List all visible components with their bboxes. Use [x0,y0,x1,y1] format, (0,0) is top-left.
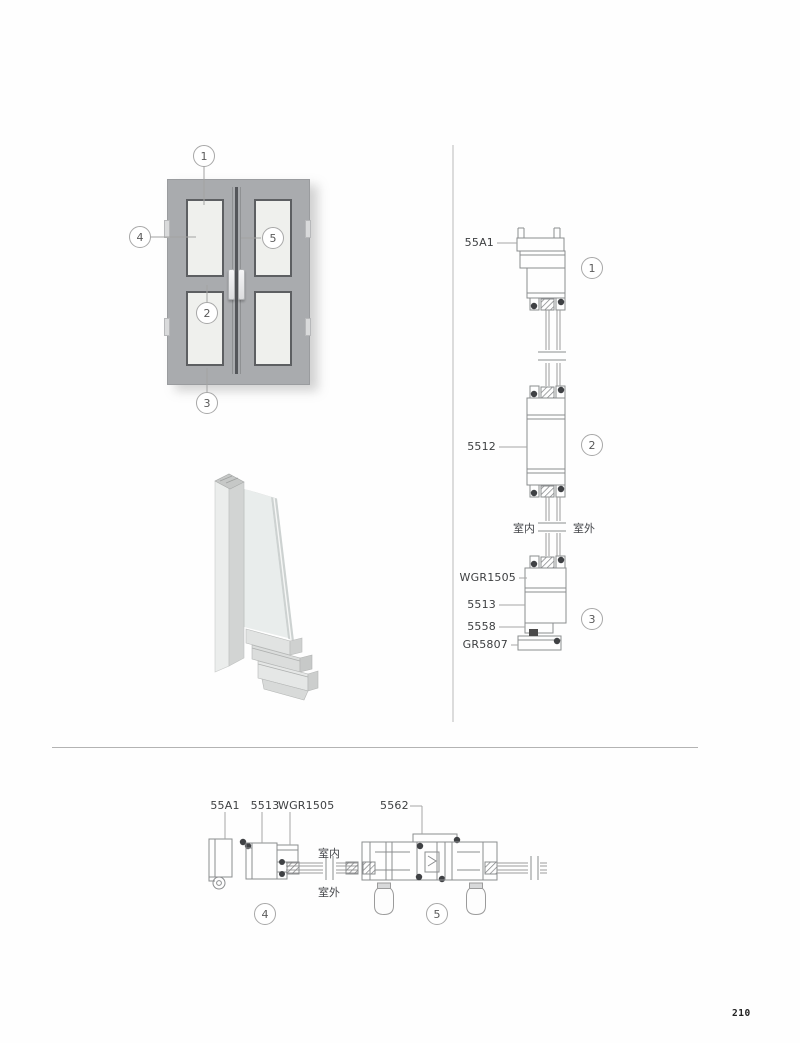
callout-section-5-label: 5 [434,908,441,921]
horizontal-divider [52,747,698,748]
page-number: 210 [732,1008,751,1019]
callout-4-label: 4 [137,231,144,244]
label-head-frame: 55A1 [414,236,494,250]
door-handle-section [375,883,394,915]
label-sill: GR5807 [428,638,508,652]
outdoor-label-horizontal: 室外 [318,884,340,900]
callout-3: 3 [196,392,218,414]
indoor-label-vertical: 室内 [513,520,535,536]
callout-section-2: 2 [581,434,603,456]
hinge [164,318,170,336]
profile-3d-view [215,474,318,700]
callout-section-3: 3 [581,608,603,630]
hinge [305,318,311,336]
label-bottom-frame: 5513 [416,598,496,612]
indoor-label-horizontal: 室内 [318,845,340,861]
window-handle-left [228,269,235,300]
label-transom: 5512 [416,440,496,454]
vertical-divider [452,145,454,722]
label-connector: 5558 [416,620,496,634]
line-art-overlay [0,0,800,1043]
hinge [164,220,170,238]
callout-2: 2 [196,302,218,324]
horizontal-section-drawing [209,806,547,915]
callout-section-3-label: 3 [589,613,596,626]
hinge [305,220,311,238]
callout-3-label: 3 [204,397,211,410]
glass-pane [186,199,224,277]
label-interlock: 5562 [380,799,409,813]
callout-5: 5 [262,227,284,249]
callout-section-4-label: 4 [262,908,269,921]
outdoor-label-vertical: 室外 [573,520,595,536]
callout-1-label: 1 [201,150,208,163]
callout-2-label: 2 [204,307,211,320]
callout-1: 1 [193,145,215,167]
callout-5-label: 5 [270,232,277,245]
callout-4: 4 [129,226,151,248]
window-handle-right [238,269,245,300]
label-glazing-bead-h: WGR1505 [278,799,334,813]
callout-section-4: 4 [254,903,276,925]
label-glazing-bead: WGR1505 [436,571,516,585]
vertical-section-drawing [497,228,566,650]
catalog-page: 1 2 3 4 5 [0,0,800,1043]
callout-section-1-label: 1 [589,262,596,275]
callout-section-5: 5 [426,903,448,925]
door-handle-section [467,883,486,915]
callout-section-1: 1 [581,257,603,279]
glass-pane [254,291,292,366]
callout-section-2-label: 2 [589,439,596,452]
